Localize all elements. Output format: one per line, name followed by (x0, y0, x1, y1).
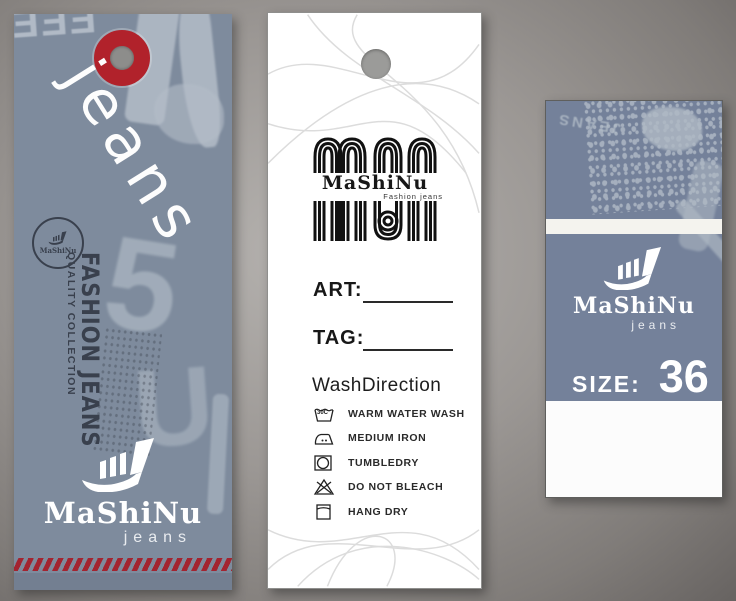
right-size-tag: JEANS MaShiNu jeans SIZE: 36 (545, 100, 723, 498)
care-label: MEDIUM IRON (348, 432, 426, 444)
brand-m-icon (80, 438, 160, 492)
logo-brand-band: MaShiNu Fashion jeans (293, 173, 457, 201)
brand-m-icon (602, 247, 666, 290)
wash-basin-icon: 30C (313, 405, 335, 423)
tag-blank-line (363, 349, 453, 351)
brand-sub-text: jeans (124, 529, 192, 547)
wash-direction-title: WashDirection (312, 375, 441, 397)
care-row: 30C WARM WATER WASH (313, 405, 465, 422)
white-band (546, 219, 722, 234)
care-label: HANG DRY (348, 506, 408, 518)
wash-temp-text: 30C (317, 410, 328, 416)
left-hang-tag: EEE 5 U jeans MaShiNu FASHION JEANS QUAL… (14, 14, 232, 590)
bottom-shade (14, 573, 232, 590)
brand-m-logo (80, 438, 160, 497)
quality-collection-text: QUALITY COLLECTION (65, 252, 77, 488)
do-not-bleach-icon (313, 478, 335, 496)
size-label: SIZE: (572, 371, 641, 398)
care-row: MEDIUM IRON (313, 430, 465, 447)
grunge-texture (154, 84, 224, 144)
red-stripe-band (14, 558, 232, 571)
care-row: HANG DRY (313, 503, 465, 520)
blank-white-panel (546, 401, 722, 498)
care-label: DO NOT BLEACH (348, 481, 443, 493)
brand-wordmark: MaShiNu (14, 496, 232, 530)
brand-sub-text: jeans (631, 318, 680, 332)
logo-sub-text: Fashion jeans (383, 192, 443, 201)
center-care-tag: MaShiNu Fashion jeans ART: TAG: WashDire… (267, 12, 482, 589)
care-label: WARM WATER WASH (348, 408, 465, 420)
grunge-letter-marks: EEE (14, 14, 98, 48)
hang-dry-icon (313, 503, 335, 521)
art-label: ART: (313, 279, 363, 302)
logo-brand-text: MaShiNu (322, 174, 428, 192)
care-row: DO NOT BLEACH (313, 479, 465, 496)
brand-m-logo (602, 247, 666, 295)
msn-striped-logo: MaShiNu Fashion jeans (299, 129, 451, 241)
tumble-dry-icon (313, 454, 335, 472)
tag-label: TAG: (313, 327, 364, 350)
care-instructions-list: 30C WARM WATER WASH MEDIUM IRON TUMBLEDR… (313, 405, 465, 520)
brand-wordmark: MaShiNu (546, 293, 722, 319)
care-row: TUMBLEDRY (313, 454, 465, 471)
brand-m-icon (48, 231, 68, 245)
art-blank-line (363, 301, 453, 303)
care-label: TUMBLEDRY (348, 457, 419, 469)
size-row: SIZE: 36 (572, 351, 702, 403)
size-value: 36 (659, 351, 709, 403)
iron-icon (313, 429, 335, 447)
punch-hole (361, 49, 391, 79)
